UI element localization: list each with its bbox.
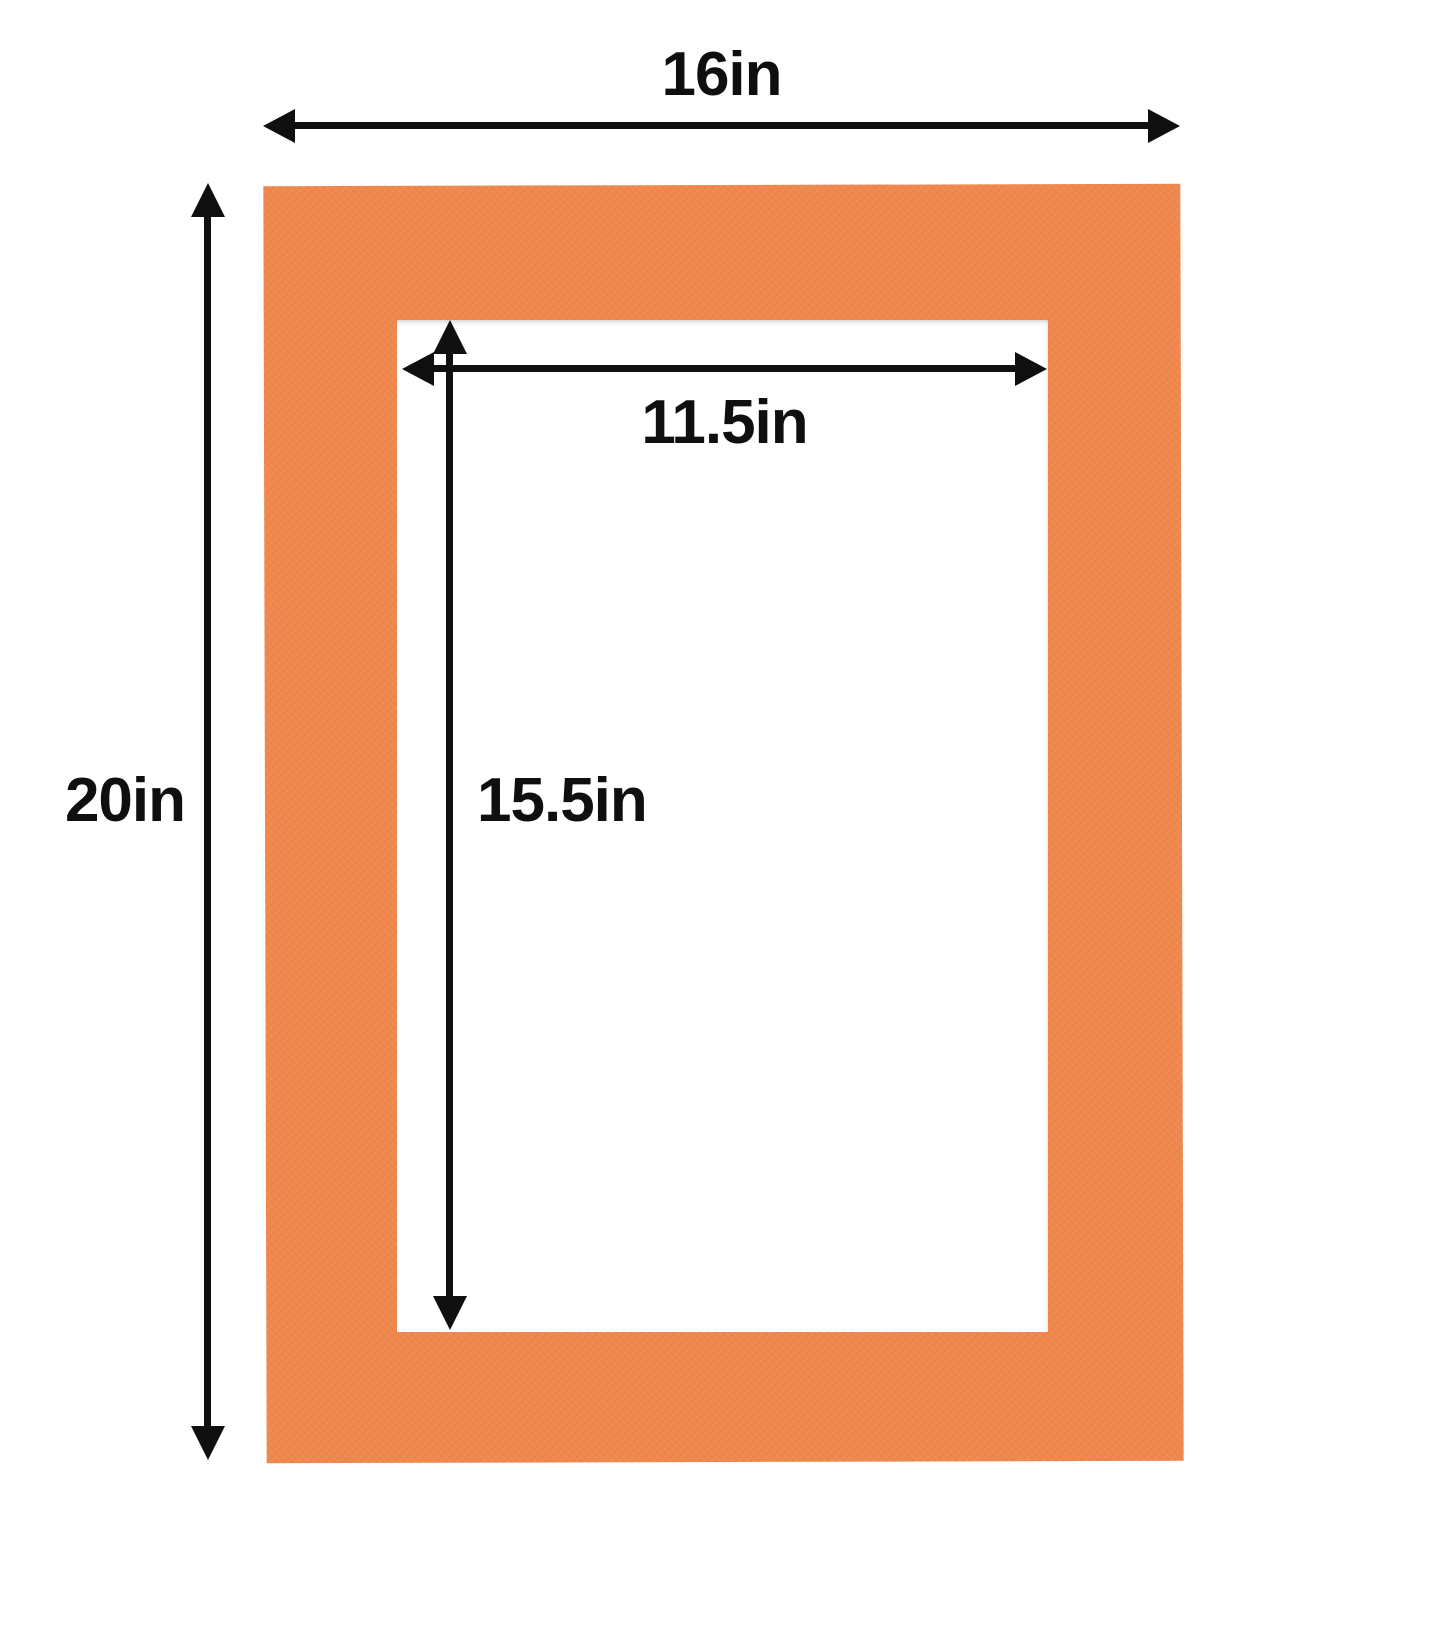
arrowhead-right-icon	[1148, 109, 1180, 143]
outer-width-label: 16in	[263, 44, 1180, 106]
opening-width-arrow-icon	[402, 349, 1047, 389]
outer-width-arrow-icon	[263, 106, 1180, 146]
arrow-shaft	[446, 342, 453, 1308]
arrow-shaft	[424, 365, 1025, 372]
opening-height-label: 15.5in	[477, 770, 647, 832]
outer-height-label: 20in	[35, 770, 185, 832]
arrowhead-right-icon	[1015, 352, 1047, 386]
arrow-shaft	[204, 205, 211, 1438]
outer-height-arrow-icon	[188, 183, 228, 1460]
arrowhead-down-icon	[191, 1426, 225, 1460]
arrow-shaft	[285, 122, 1158, 129]
arrowhead-down-icon	[433, 1296, 467, 1330]
opening-width-label: 11.5in	[402, 392, 1047, 454]
mat-dimension-diagram: 16in 20in 11.5in 15.5in	[0, 0, 1445, 1645]
opening-height-arrow-icon	[430, 320, 470, 1330]
